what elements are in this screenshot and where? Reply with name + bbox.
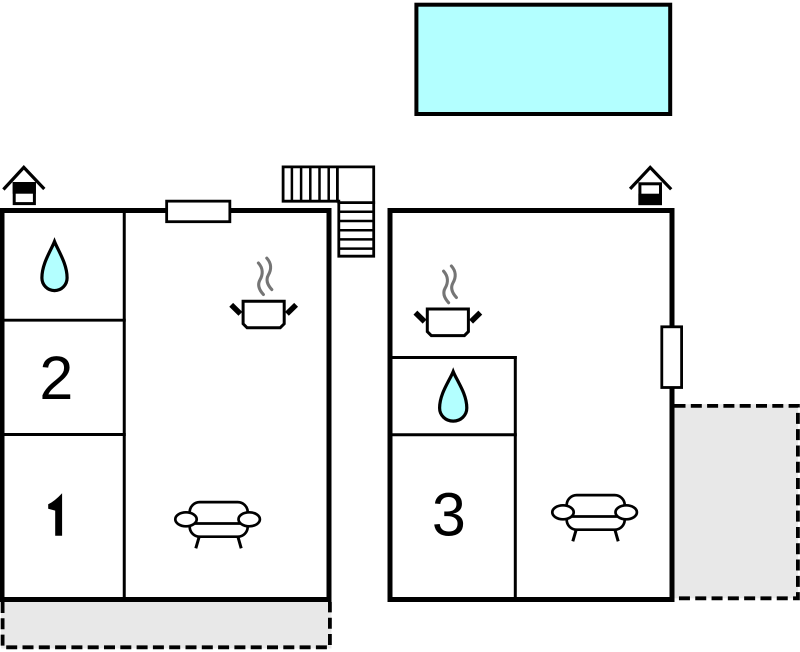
svg-text:3: 3 [432, 480, 466, 548]
svg-text:2: 2 [39, 344, 73, 412]
